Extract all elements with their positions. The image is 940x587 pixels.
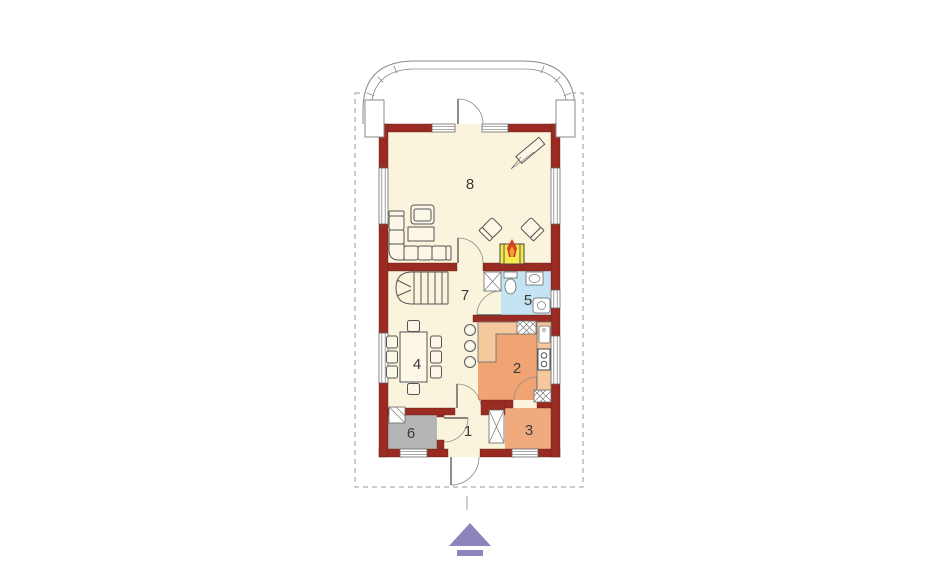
flue-shaft-utility	[389, 407, 405, 423]
window-bathroom	[551, 290, 560, 308]
armchair	[411, 205, 434, 224]
room-label-pantry: 3	[525, 422, 533, 439]
room-label-living: 8	[466, 176, 474, 193]
window-kitchen	[551, 336, 560, 384]
vent-shaft-kitchen-top	[517, 321, 536, 334]
room-label-utility: 6	[407, 425, 415, 442]
terrace-pier-right	[556, 100, 575, 137]
floor-plan-drawing: 8 7 5 2 4 6 1 3	[0, 0, 940, 587]
room-label-hall: 7	[461, 287, 469, 304]
washbasin-icon	[526, 272, 543, 285]
terrace-pier-left	[365, 100, 384, 137]
vent-shaft-pantry	[489, 410, 504, 443]
arrow-logo-icon	[449, 523, 491, 556]
room-label-dining: 4	[413, 356, 421, 373]
coffee-table	[408, 227, 434, 241]
room-label-kitchen: 2	[513, 360, 521, 377]
main-entrance-door	[451, 457, 479, 485]
terrace-steps	[363, 61, 575, 124]
washer-icon	[533, 298, 550, 313]
floor-plan-canvas: 8 7 5 2 4 6 1 3	[0, 0, 940, 587]
window-utility	[400, 449, 427, 457]
window-top-left	[432, 124, 455, 132]
bar-stools	[465, 325, 476, 368]
window-pantry	[512, 449, 538, 457]
room-label-entry: 1	[464, 423, 472, 440]
room-label-bathroom: 5	[524, 292, 532, 309]
vent-shaft-kitchen-bottom	[534, 390, 551, 402]
kitchen-stove-icon	[538, 349, 550, 370]
vent-shaft-hall	[484, 272, 501, 291]
window-top-right	[482, 124, 508, 132]
toilet-icon	[504, 272, 517, 294]
window-living-left	[379, 168, 388, 224]
window-living-right	[551, 168, 560, 224]
kitchen-sink-icon	[539, 326, 550, 343]
